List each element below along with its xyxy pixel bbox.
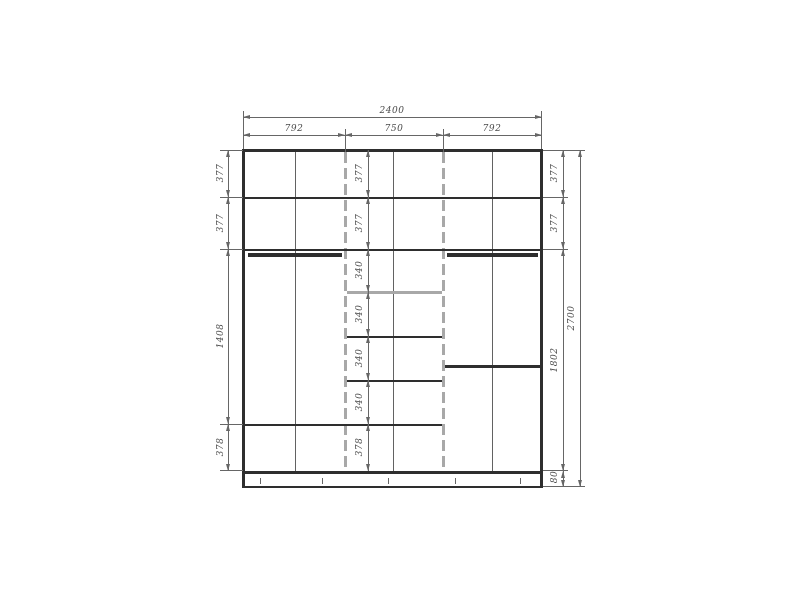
shelf-center-highlight (347, 291, 442, 294)
divider-right-section (492, 152, 493, 471)
dim-label-right-inner-4: 80 (550, 471, 560, 483)
dim-arrow (561, 197, 565, 204)
shelf-second-row (245, 249, 540, 251)
left-side-panel (242, 149, 245, 488)
dim-arrow (366, 329, 370, 336)
dim-label-left-1: 377 (216, 164, 226, 183)
dim-arrow (535, 133, 542, 137)
dim-label-overall-width: 2400 (380, 106, 405, 116)
hanging-rod-left (248, 253, 342, 257)
dim-label-section-width-3: 792 (483, 124, 502, 134)
dim-arrow (366, 424, 370, 431)
dim-arrow (226, 417, 230, 424)
dim-label-center-6: 340 (355, 393, 365, 412)
dim-arrow (561, 249, 565, 256)
base-bottom-edge (243, 486, 542, 488)
dim-label-center-3: 340 (355, 261, 365, 280)
dim-arrow (366, 336, 370, 343)
dim-label-center-1: 377 (355, 164, 365, 183)
dim-arrow (338, 133, 345, 137)
dim-arrow (226, 197, 230, 204)
dim-label-right-inner-1: 377 (550, 164, 560, 183)
dim-label-right-inner-3: 1802 (550, 348, 560, 373)
dim-label-section-width-1: 792 (285, 124, 304, 134)
dim-arrow (561, 471, 565, 478)
dim-arrow (243, 115, 250, 119)
extension-line (220, 150, 243, 151)
dim-label-overall-height: 2700 (567, 306, 577, 331)
foot-tick (520, 478, 521, 484)
dim-arrow (243, 133, 250, 137)
dim-arrow (366, 380, 370, 387)
dim-arrow (578, 480, 582, 487)
dim-arrow (366, 464, 370, 471)
hanging-rod-right (447, 253, 538, 257)
shelf-top-row (245, 197, 540, 199)
dim-arrow (366, 292, 370, 299)
dim-arrow (443, 133, 450, 137)
extension-line (220, 470, 243, 471)
dim-arrow (226, 190, 230, 197)
dim-line-right-outer (580, 150, 581, 487)
foot-tick (322, 478, 323, 484)
dim-arrow (366, 150, 370, 157)
dim-arrow (366, 197, 370, 204)
dim-arrow (561, 242, 565, 249)
dim-arrow (366, 242, 370, 249)
shelf-center-3 (347, 380, 442, 382)
dim-arrow (226, 150, 230, 157)
extension-line (220, 197, 243, 198)
partition-wall-right (442, 152, 445, 471)
foot-tick (388, 478, 389, 484)
foot-tick (260, 478, 261, 484)
dim-arrow (561, 464, 565, 471)
dim-arrow (535, 115, 542, 119)
shelf-left-and-center (245, 424, 442, 426)
extension-line (220, 424, 243, 425)
right-side-panel (540, 149, 543, 488)
dim-arrow (436, 133, 443, 137)
bottom-panel (243, 471, 542, 474)
dim-line-section-widths (243, 135, 542, 136)
dim-arrow (366, 190, 370, 197)
dim-label-center-2: 377 (355, 214, 365, 233)
extension-line (220, 249, 243, 250)
foot-tick (455, 478, 456, 484)
dim-arrow (226, 464, 230, 471)
dim-label-left-3: 1408 (216, 324, 226, 349)
dim-label-section-width-2: 750 (385, 124, 404, 134)
dim-arrow (561, 480, 565, 487)
dim-arrow (366, 373, 370, 380)
dim-arrow (561, 150, 565, 157)
shelf-right-section (445, 365, 540, 368)
dim-label-left-2: 377 (216, 214, 226, 233)
shelf-center-2 (347, 336, 442, 338)
dim-arrow (226, 249, 230, 256)
dim-label-center-5: 340 (355, 349, 365, 368)
wardrobe-drawing: 2400 792 750 792 377 377 1408 378 377 37… (0, 0, 800, 600)
dim-arrow (345, 133, 352, 137)
dim-label-center-4: 340 (355, 305, 365, 324)
dim-arrow (578, 150, 582, 157)
dim-label-left-4: 378 (216, 438, 226, 457)
dim-line-overall-width (243, 117, 542, 118)
dim-arrow (226, 424, 230, 431)
dim-arrow (561, 190, 565, 197)
dim-label-right-inner-2: 377 (550, 214, 560, 233)
dim-arrow (366, 285, 370, 292)
dim-arrow (366, 249, 370, 256)
dim-arrow (226, 242, 230, 249)
dim-arrow (366, 417, 370, 424)
dim-label-center-7: 378 (355, 438, 365, 457)
